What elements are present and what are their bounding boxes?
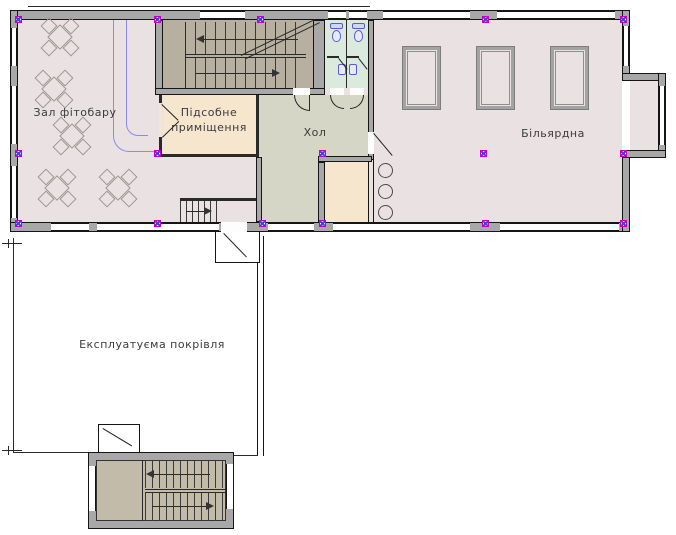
window	[497, 11, 615, 19]
column-marker	[620, 150, 627, 157]
window	[349, 11, 367, 19]
stair-down-arrow-line	[196, 73, 274, 74]
billiard-door-opening	[368, 132, 374, 154]
hall-left-wall	[256, 157, 262, 222]
roof-tick	[2, 450, 22, 451]
column-marker	[620, 16, 627, 23]
storage-right-wall	[368, 160, 374, 222]
window	[11, 28, 17, 66]
window	[11, 166, 17, 218]
ext-stair-window	[88, 466, 96, 511]
window	[623, 26, 629, 66]
wc-door-opening	[350, 88, 364, 95]
utility-bottom-wall	[159, 154, 259, 157]
bay-bottom-wall	[622, 150, 666, 158]
basin-symbol	[349, 64, 357, 75]
column-marker	[482, 16, 489, 23]
roof-left-line	[13, 238, 14, 453]
window	[383, 11, 470, 19]
column-marker	[15, 220, 22, 227]
roof-tick	[8, 239, 9, 248]
ext-stair-landing-line	[145, 489, 226, 490]
stair-door-opening	[293, 88, 310, 95]
pipe-line	[126, 20, 148, 136]
stair-door-leaf	[309, 95, 310, 111]
canopy-line	[28, 6, 370, 7]
column-marker	[257, 16, 264, 23]
ext-stair-window	[226, 464, 234, 509]
ministair-arrow-head	[204, 207, 212, 215]
cafe-table	[43, 20, 77, 54]
utility-right-wall	[256, 95, 259, 157]
billiard-table	[477, 47, 514, 109]
toilet-symbol	[352, 23, 365, 29]
round-table	[378, 163, 393, 178]
roof-right-line	[257, 236, 264, 456]
room-label-roof: Експлуатуєма покрівля	[72, 337, 232, 352]
room-label-utility: Підсобне приміщення	[163, 105, 255, 135]
toilet-symbol	[354, 30, 363, 42]
window	[333, 223, 470, 231]
roof-tick	[2, 243, 22, 244]
stair-edge-line	[185, 22, 186, 88]
window	[328, 11, 346, 19]
column-marker	[319, 150, 326, 157]
window	[500, 223, 619, 231]
storage-left-wall	[318, 162, 325, 222]
hall-floor-lower	[262, 156, 318, 222]
room-label-billiard: Більярдна	[508, 126, 598, 141]
window	[11, 86, 17, 144]
column-marker	[259, 220, 266, 227]
ext-stair-up-arrow-head	[146, 470, 154, 478]
roof-connector-line	[232, 455, 258, 456]
storage-room-floor	[325, 162, 368, 222]
column-marker	[154, 150, 161, 157]
column-marker	[154, 16, 161, 23]
utility-label-line1: Підсобне	[181, 106, 237, 119]
column-marker	[620, 220, 627, 227]
cafe-table	[37, 72, 71, 106]
storage-top-wall	[318, 156, 372, 162]
ministair-arrow-line	[186, 211, 206, 212]
roof-door-opening	[221, 222, 247, 232]
roof-tick	[8, 446, 9, 455]
cafe-table	[101, 171, 135, 205]
billiard-table	[551, 47, 588, 109]
stair-landing-line	[185, 54, 306, 55]
toilet-symbol	[330, 23, 343, 29]
room-label-fitobar: Зал фітобару	[25, 105, 125, 120]
column-marker	[482, 220, 489, 227]
column-marker	[480, 150, 487, 157]
cafe-table	[55, 119, 89, 153]
window	[51, 223, 89, 231]
room-label-hall: Хол	[285, 125, 345, 140]
window	[268, 223, 314, 231]
floor-plan: Зал фітобару Підсобне приміщення Хол Біл…	[0, 0, 676, 535]
round-table	[378, 205, 393, 220]
ext-stair-divider	[142, 460, 143, 521]
column-marker	[15, 150, 22, 157]
cafe-table	[40, 171, 74, 205]
window	[200, 11, 245, 19]
bay-window	[659, 86, 665, 145]
roof-bottom-line	[13, 452, 91, 453]
utility-label-line2: приміщення	[171, 121, 247, 134]
ext-stair-down-arrow-line	[152, 506, 208, 507]
ext-stair-down-arrow-head	[206, 502, 214, 510]
toilet-symbol	[332, 30, 341, 42]
column-marker	[154, 220, 161, 227]
stair-right-wall	[313, 20, 325, 95]
stair-up-arrow-head	[196, 35, 204, 43]
billiard-table	[403, 47, 440, 109]
stair-up-arrow-line	[204, 39, 298, 40]
ext-stair-up-arrow-line	[152, 474, 210, 475]
wc-door-opening	[330, 88, 344, 95]
bay-window-floor	[630, 81, 658, 150]
wc-partition	[346, 20, 347, 88]
column-marker	[319, 220, 326, 227]
column-marker	[15, 16, 22, 23]
round-table	[378, 184, 393, 199]
stair-down-arrow-head	[272, 69, 280, 77]
